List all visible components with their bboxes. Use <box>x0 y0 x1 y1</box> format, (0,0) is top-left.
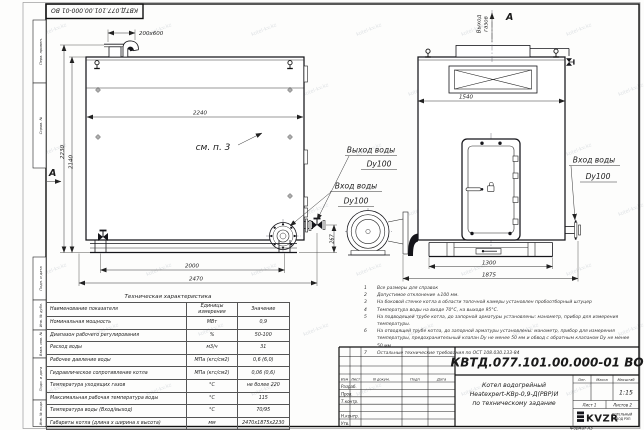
note-line: 6На отводящей трубе котла, до запорной а… <box>362 328 636 350</box>
row-n-kontr: Н.контр. <box>341 414 359 419</box>
table-row: Номинальная мощностьМВт0,9 <box>47 317 290 330</box>
col-data: Дата <box>436 378 446 382</box>
valve-icon <box>312 219 322 230</box>
svg-text:2240: 2240 <box>193 110 207 116</box>
svg-text:kotel-kv.kz: kotel-kv.kz <box>251 22 278 38</box>
row-prov: Пров. <box>341 391 353 396</box>
tech-table: Наименование показателя Единицы измерени… <box>46 302 290 430</box>
stamp-inv-podl: Инв. № подл. <box>39 401 43 426</box>
stamp-podp-data-1: Подп. и дата <box>39 266 43 290</box>
col-n-dokum: N докум. <box>373 378 390 382</box>
furnace-door <box>462 133 520 256</box>
title-block-doc-number: КВТД.077.101.00.000-01 ВО <box>450 356 643 370</box>
tech-characteristics: Техническая характеристика Наименование … <box>46 294 290 430</box>
dim-pipe-height: 267 <box>299 225 337 253</box>
technical-notes: 1Все размеры для справок 2Допустимое отк… <box>362 285 636 357</box>
kvzr-logo: KVZR КОТЕЛЬНЫЙ ЗАВОД РЭП <box>577 412 633 425</box>
sheets-total: Листов 2 <box>612 402 632 407</box>
fan-blower <box>345 208 418 256</box>
note-line: 4Температура воды на входе 70°С, на выхо… <box>362 307 636 314</box>
label-water-in-side: Вход воды Dy100 <box>569 156 620 221</box>
masshtab-header: Масштаб <box>617 378 635 382</box>
table-row: Рабочее давление водыМПа (кгс/см2)0,6 (6… <box>47 354 290 367</box>
svg-text:Вход воды: Вход воды <box>335 182 377 191</box>
table-row: Температура уходящих газов°Сне более 220 <box>47 379 290 392</box>
vent-grille <box>449 66 537 93</box>
lifting-lug-icon <box>425 49 431 57</box>
lifting-lug-icon <box>553 49 559 57</box>
svg-text:kotel-kv.kz: kotel-kv.kz <box>303 322 330 338</box>
burner-elbow <box>408 234 418 257</box>
svg-text:см. п. 3: см. п. 3 <box>196 143 231 153</box>
door-handle <box>466 188 481 191</box>
svg-text:267: 267 <box>329 233 335 243</box>
product-title-1: Котел водогрейный <box>482 382 546 389</box>
svg-text:газов: газов <box>484 16 490 32</box>
sheet-number: Лист 1 <box>582 402 597 407</box>
svg-text:Выход воды: Выход воды <box>347 146 395 155</box>
drawing-sheet: kotel-kv.kzkotel-kv.kzkotel-kv.kzkotel-k… <box>0 0 644 430</box>
svg-text:2000: 2000 <box>185 264 199 270</box>
row-razrab: Разраб. <box>341 384 357 389</box>
svg-text:1300: 1300 <box>482 260 496 266</box>
table-row: Температура воды (Вход/выход)°С70/95 <box>47 405 290 418</box>
dim-side-base: 1300 <box>429 258 553 270</box>
logo-sub-2: ЗАВОД РЭП <box>612 417 631 421</box>
front-view: 200x600 2240 2230 2140 2000 2470 <box>47 30 397 287</box>
table-row: Максимальная рабочая температура воды°С1… <box>47 392 290 405</box>
svg-text:А: А <box>505 12 513 23</box>
stamp-perv-primen: Перв. примен. <box>39 38 43 65</box>
outlet-pipe-valve <box>304 219 325 233</box>
svg-text:kotel-kv.kz: kotel-kv.kz <box>566 382 593 398</box>
stamp-sprav-no: Справ. № <box>39 116 43 134</box>
table-row: Диапазон рабочего регулирования%50-100 <box>47 329 290 342</box>
stamp-inv-dubl: Инв. № дубл. <box>39 303 43 328</box>
svg-text:1540: 1540 <box>459 95 473 101</box>
section-arrow-a: А <box>47 168 61 182</box>
dim-flue-opening: 200x600 <box>108 30 164 43</box>
col-izm: Изм <box>341 378 349 382</box>
svg-text:kotel-kv.kz: kotel-kv.kz <box>356 262 383 278</box>
flue-outlet <box>104 41 138 57</box>
gas-valve-icon <box>566 58 574 66</box>
svg-text:2140: 2140 <box>68 155 74 169</box>
lit-header: Лит. <box>577 378 586 382</box>
logo-sub-1: КОТЕЛЬНЫЙ <box>612 412 633 417</box>
base-frame <box>90 240 297 253</box>
note-line: 3На боковой стенке котла в области топоч… <box>362 299 636 306</box>
doc-number-stamp-text: КВТД.077.101.00.000-01 ВО <box>51 6 138 13</box>
note-line: 2Допустимое отклонение ±100 мм. <box>362 292 636 299</box>
side-inlet-flange <box>565 220 581 240</box>
dim-height-body: 2140 <box>68 57 86 253</box>
svg-text:Выход: Выход <box>477 15 483 34</box>
svg-text:Dy100: Dy100 <box>344 197 369 206</box>
svg-text:А: А <box>48 168 56 179</box>
note-line: 5На подводящей трубе котла, до запорной … <box>362 314 636 328</box>
svg-text:Dy100: Dy100 <box>367 160 392 169</box>
scale-value: 1:15 <box>619 390 633 397</box>
side-base-frame <box>429 243 553 257</box>
svg-text:kotel-kv.kz: kotel-kv.kz <box>356 382 383 398</box>
svg-text:kotel-kv.kz: kotel-kv.kz <box>566 22 593 38</box>
svg-text:Вход воды: Вход воды <box>573 156 615 165</box>
note-line: 7Остальные технические требования по ОСТ… <box>362 350 636 357</box>
stamp-podp-data-2: Подп. и дата <box>39 367 43 391</box>
svg-text:kotel-kv.kz: kotel-kv.kz <box>303 82 330 98</box>
table-row: Габариты котла (длина x ширина x высота)… <box>47 417 290 430</box>
row-utv: Утв. <box>341 421 349 426</box>
table-row: Гидравлическое сопротивление котлаМПа (к… <box>47 367 290 380</box>
product-title-2: Heatexpert-КВр-0,9-Д(РВР)И <box>470 390 559 398</box>
svg-text:kotel-kv.kz: kotel-kv.kz <box>356 22 383 38</box>
svg-text:1875: 1875 <box>482 272 496 278</box>
col-podp: Подп <box>410 378 420 382</box>
svg-text:2230: 2230 <box>60 145 66 159</box>
title-block: Изм Лист N докум. Подп Дата Разраб. Пров… <box>339 347 644 427</box>
doc-number-stamp: КВТД.077.101.00.000-01 ВО <box>51 6 138 13</box>
table-header-row: Наименование показателя Единицы измерени… <box>47 303 290 317</box>
svg-text:2470: 2470 <box>189 277 203 283</box>
note-line: 1Все размеры для справок <box>362 285 636 292</box>
stamp-vzam-inv: Взам. инв. № <box>39 332 43 357</box>
svg-text:200x600: 200x600 <box>139 31 164 37</box>
dim-base: 2000 <box>101 254 285 274</box>
table-row: Расход водым3/ч31 <box>47 342 290 355</box>
gas-out-annotation: Выход газов А <box>477 12 514 42</box>
row-t-kontr: Т.контр. <box>341 399 358 404</box>
col-list: Лист <box>350 378 361 382</box>
svg-text:kotel-kv.kz: kotel-kv.kz <box>566 262 593 278</box>
product-title-3: по техническому задание <box>472 400 556 407</box>
massa-header: Масса <box>596 378 607 382</box>
svg-text:Dy100: Dy100 <box>586 172 611 181</box>
table-title: Техническая характеристика <box>46 294 290 300</box>
margin-stamps: Перв. примен. Справ. № Подп. и дата Инв.… <box>33 20 46 427</box>
format-label: Формат А3 <box>570 425 593 430</box>
